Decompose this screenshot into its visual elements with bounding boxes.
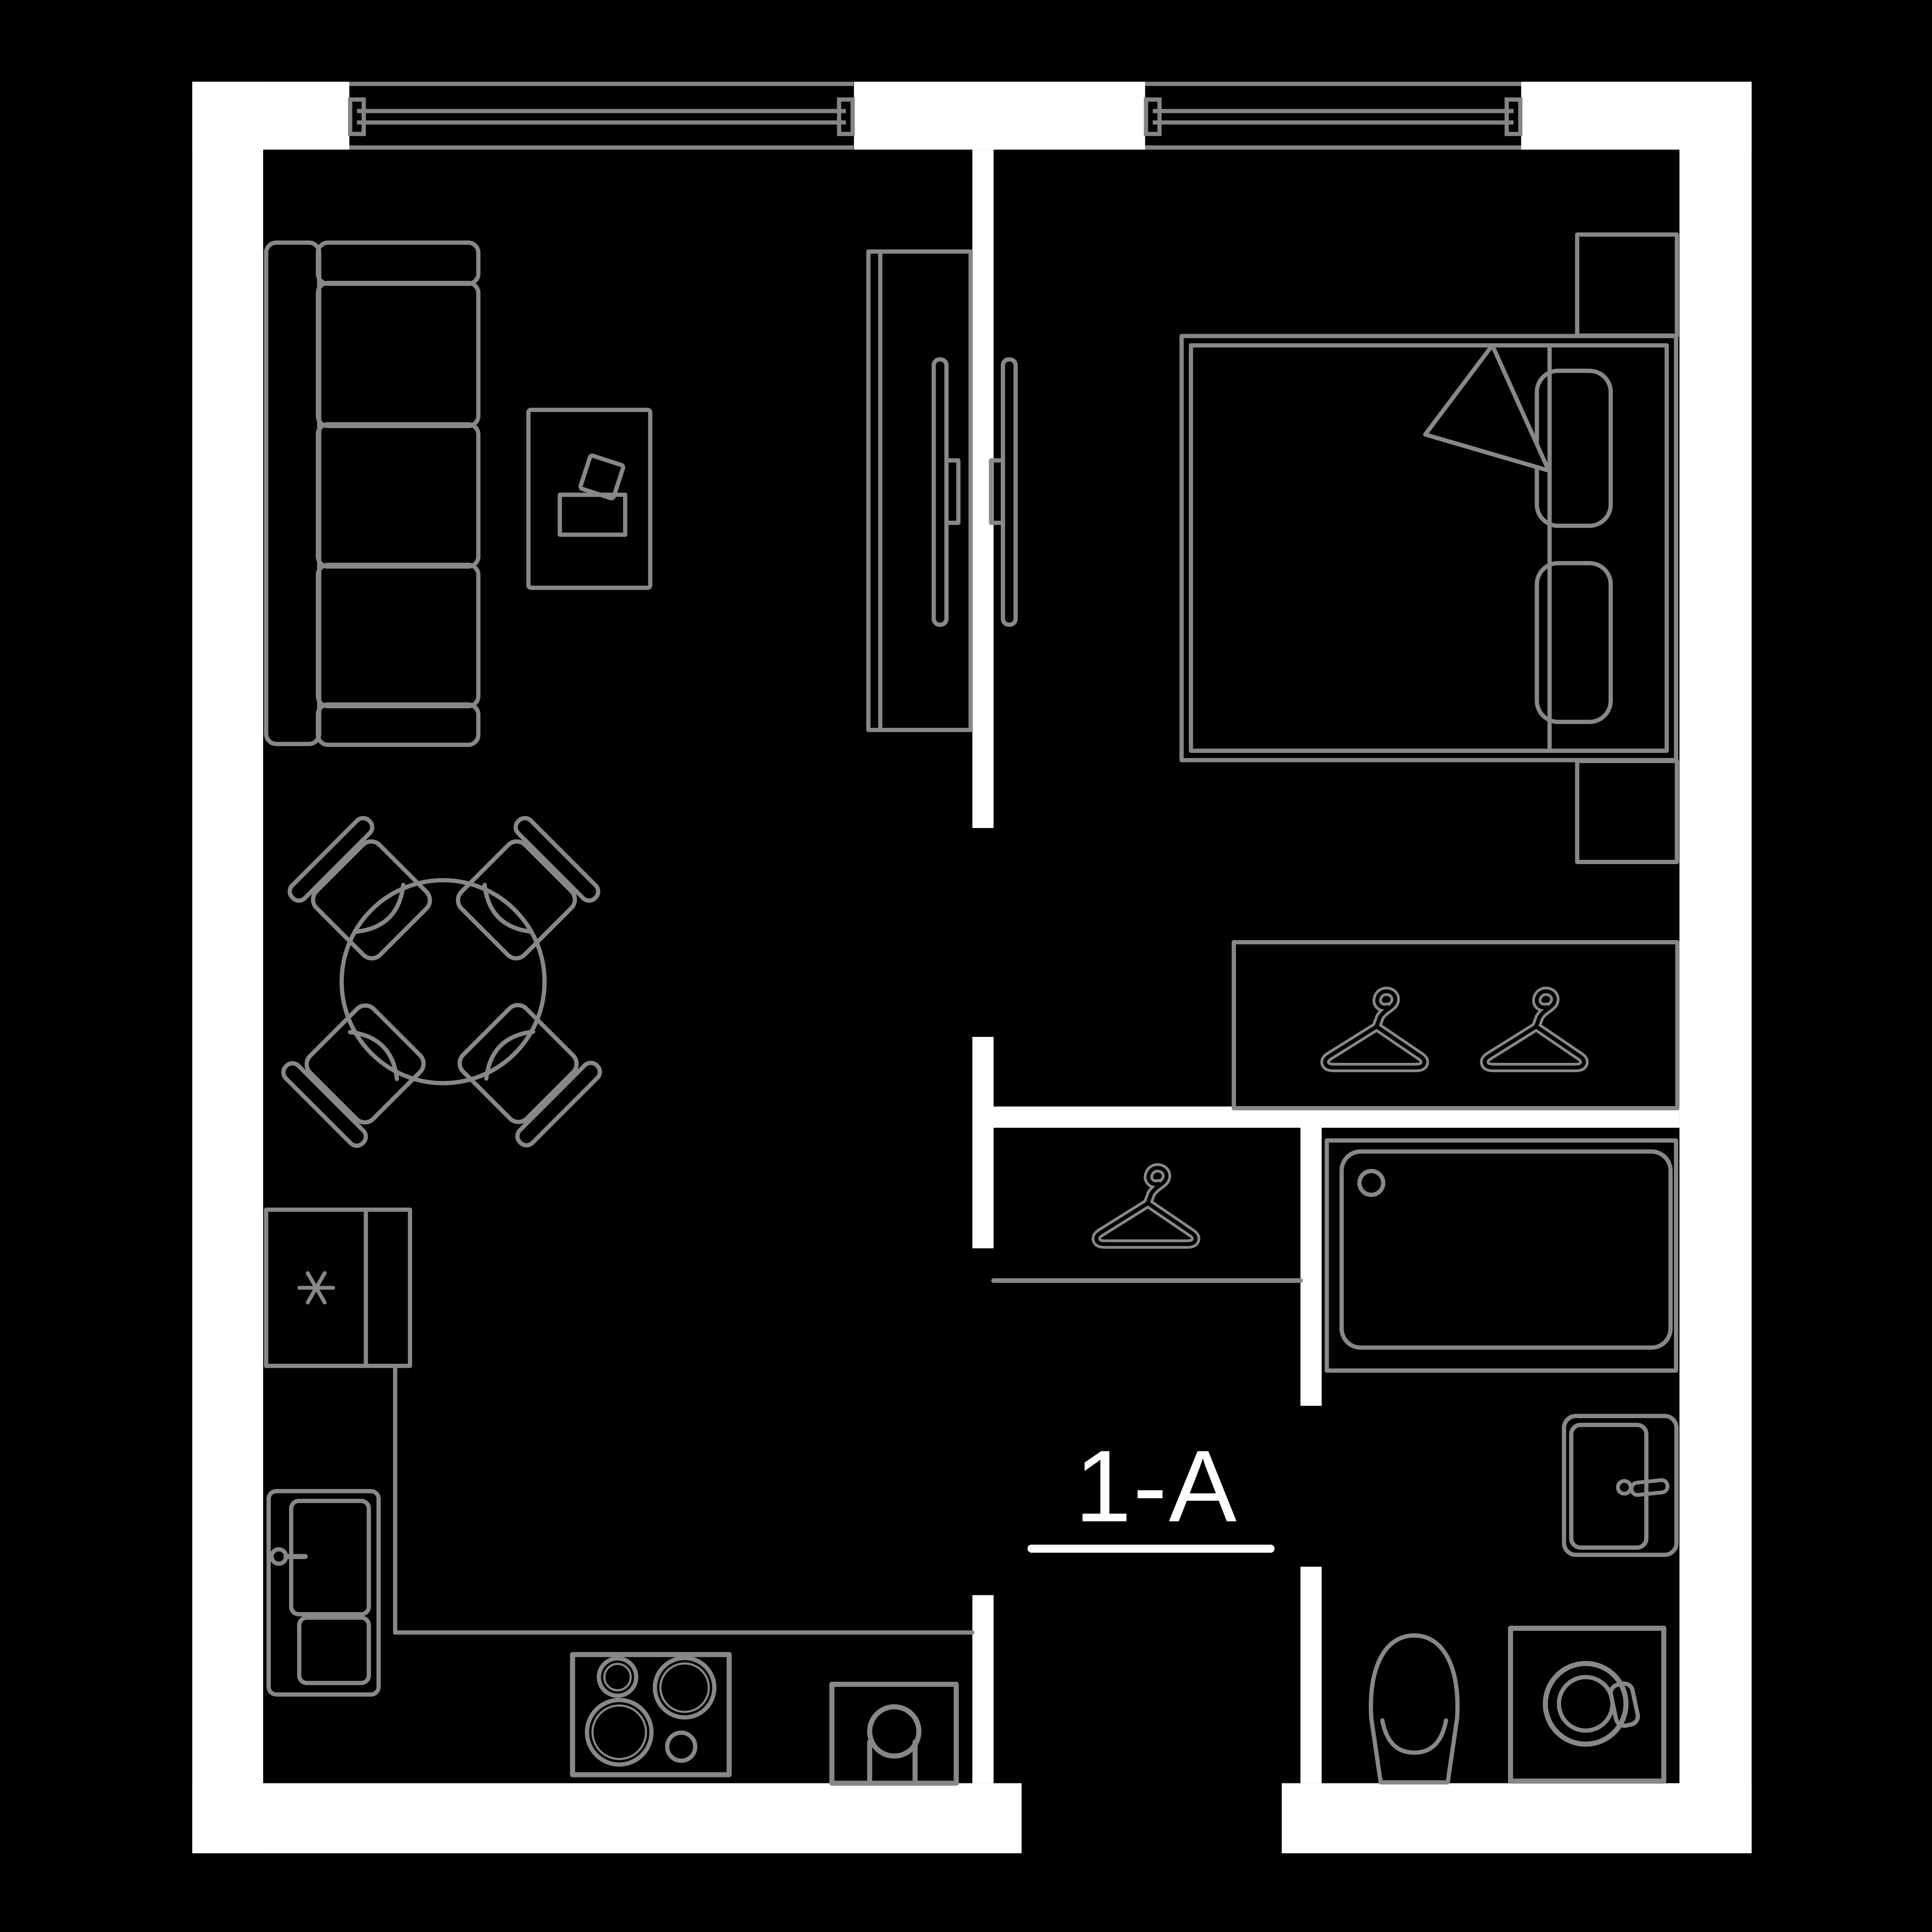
wall-left — [192, 82, 263, 1853]
wall-bath-west-upper — [1300, 1107, 1322, 1406]
plan-background — [0, 0, 1932, 1932]
wall-bottom-right — [1282, 1783, 1752, 1853]
unit-label: 1-A — [1074, 1429, 1238, 1543]
wall-bottom-left — [192, 1783, 1021, 1853]
floor-plan: 1-A — [0, 0, 1932, 1932]
wall-hall-west-lower — [972, 1595, 993, 1783]
wall-hall-west-middle — [972, 1037, 993, 1248]
wall-bath-west-lower — [1300, 1567, 1322, 1783]
unit-label-underline — [1027, 1545, 1274, 1553]
wall-right — [1679, 82, 1752, 1853]
wall-top-middle — [854, 82, 1145, 149]
wall-top-left — [192, 82, 349, 149]
